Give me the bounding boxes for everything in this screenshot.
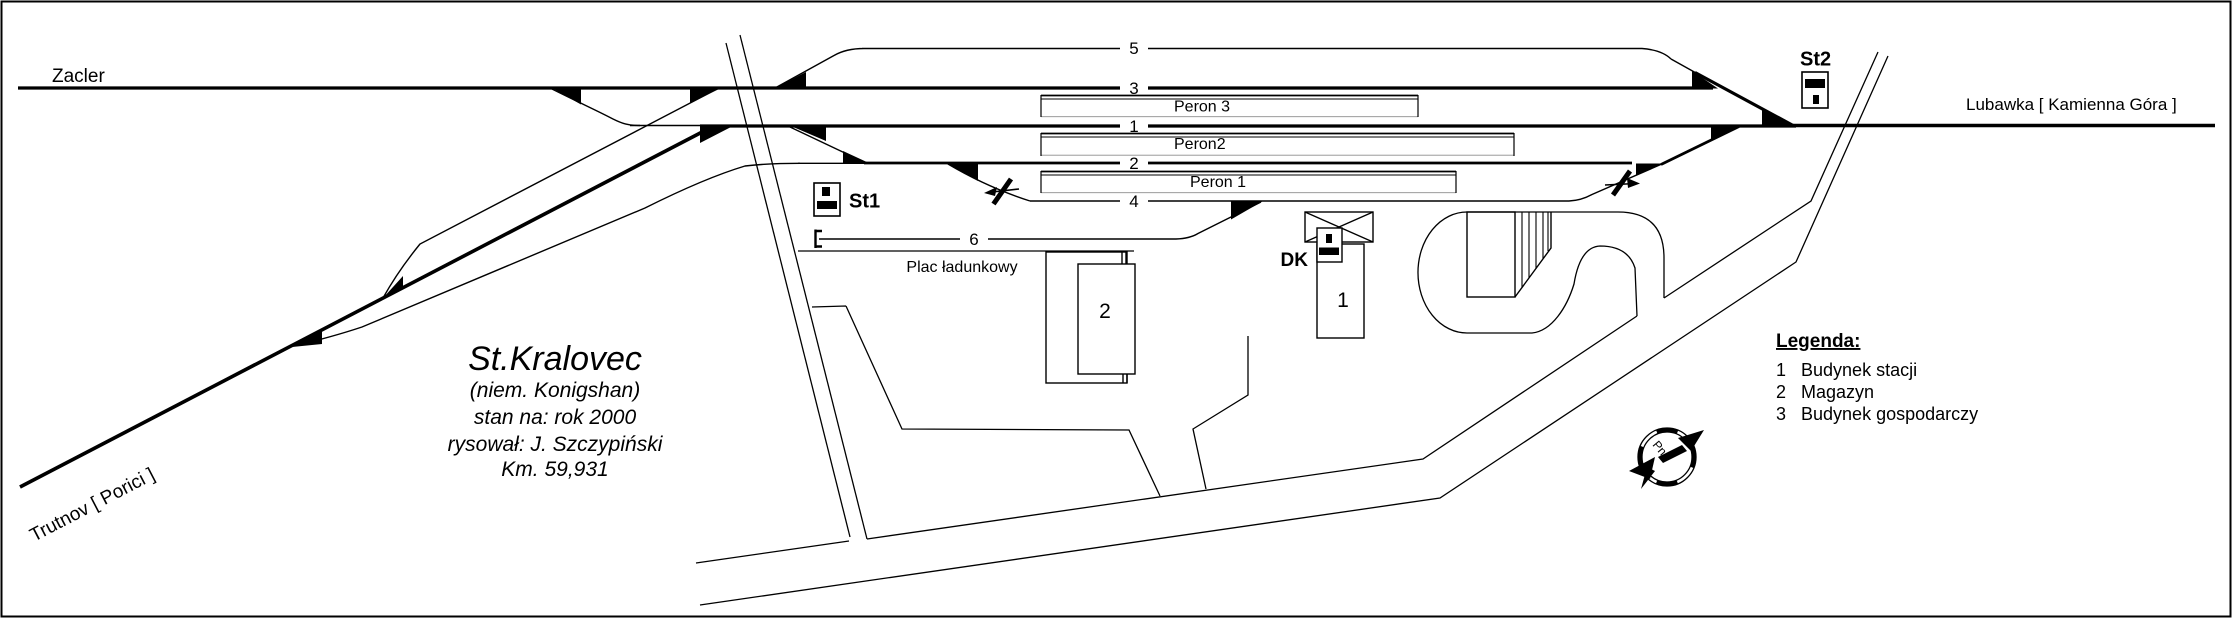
svg-text:4: 4 bbox=[1129, 192, 1138, 211]
svg-text:St1: St1 bbox=[849, 191, 880, 213]
svg-text:5: 5 bbox=[1129, 39, 1138, 58]
svg-text:Plac ładunkowy: Plac ładunkowy bbox=[906, 259, 1017, 276]
svg-text:2 Magazyn: 2 Magazyn bbox=[1776, 382, 1874, 402]
svg-text:1 Budynek stacji: 1 Budynek stacji bbox=[1776, 360, 1917, 380]
svg-text:3 Budynek gospodarczy: 3 Budynek gospodarczy bbox=[1776, 404, 1978, 424]
svg-text:Peron 3: Peron 3 bbox=[1174, 99, 1230, 116]
svg-text:DK: DK bbox=[1281, 250, 1309, 271]
svg-text:Legenda:: Legenda: bbox=[1776, 331, 1860, 352]
svg-text:Peron 1: Peron 1 bbox=[1190, 174, 1246, 191]
svg-text:6: 6 bbox=[969, 230, 978, 249]
svg-text:Km. 59,931: Km. 59,931 bbox=[501, 458, 608, 481]
svg-text:stan na: rok 2000: stan na: rok 2000 bbox=[474, 406, 637, 429]
svg-text:St.Kralovec: St.Kralovec bbox=[468, 340, 642, 378]
svg-text:Lubawka [ Kamienna Góra ]: Lubawka [ Kamienna Góra ] bbox=[1966, 95, 2177, 114]
svg-text:Peron2: Peron2 bbox=[1174, 136, 1226, 153]
svg-text:2: 2 bbox=[1129, 154, 1138, 173]
svg-text:Zacler: Zacler bbox=[52, 66, 105, 87]
svg-text:2: 2 bbox=[1099, 300, 1111, 323]
svg-text:St2: St2 bbox=[1800, 49, 1831, 71]
svg-text:(niem. Konigshan): (niem. Konigshan) bbox=[470, 379, 640, 402]
svg-text:3: 3 bbox=[1129, 79, 1138, 98]
svg-text:1: 1 bbox=[1337, 289, 1349, 312]
svg-text:1: 1 bbox=[1129, 117, 1138, 136]
svg-text:rysował: J. Szczypiński: rysował: J. Szczypiński bbox=[448, 433, 664, 456]
